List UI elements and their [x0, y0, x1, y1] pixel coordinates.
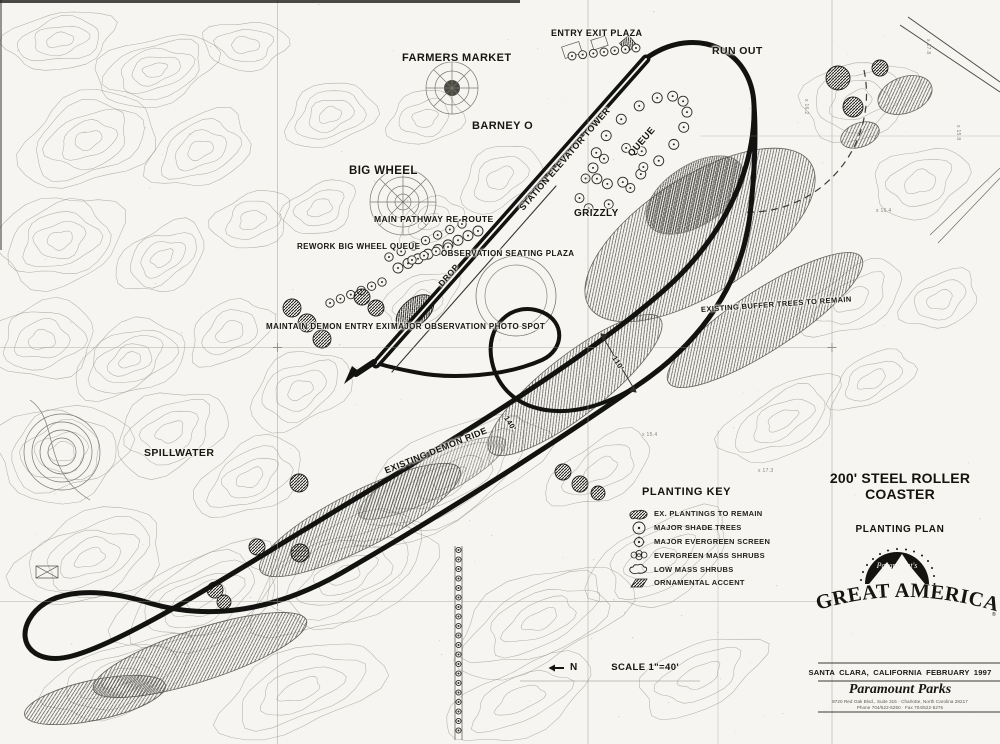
planting-masses	[20, 69, 937, 735]
north-label: N	[570, 662, 577, 673]
evergreen-mass-symbol-icon	[624, 548, 654, 562]
legend-item-label: MAJOR EVERGREEN SCREEN	[654, 537, 770, 546]
north-indicator: N	[548, 662, 577, 673]
site-plan-drawing	[0, 0, 1000, 744]
scale-text: SCALE 1"=40'	[611, 662, 679, 673]
label-farmers-market: FARMERS MARKET	[402, 52, 512, 64]
plan-sheet: ENTRY EXIT PLAZA RUN OUT FARMERS MARKET …	[0, 0, 1000, 744]
legend-item: EX. PLANTINGS TO REMAIN	[624, 507, 814, 521]
label-major-observation-photo-spot: MAJOR OBSERVATION PHOTO SPOT	[391, 322, 545, 331]
label-grizzly: GRIZZLY	[574, 208, 619, 219]
legend-item-label: LOW MASS SHRUBS	[654, 565, 734, 574]
north-arrow-icon	[548, 663, 566, 673]
legend-item: MAJOR SHADE TREES	[624, 521, 814, 535]
logo-registered-mark: ®	[992, 611, 996, 618]
legend-item-label: ORNAMENTAL ACCENT	[654, 578, 745, 587]
title-block: 200' STEEL ROLLER COASTER PLANTING PLAN	[800, 470, 1000, 535]
legend-item: EVERGREEN MASS SHRUBS	[624, 548, 814, 562]
label-big-wheel: BIG WHEEL	[349, 165, 418, 177]
spot-elevation: x 17.8	[925, 39, 931, 54]
location-date: SANTA CLARA, CALIFORNIA FEBRUARY 1997	[805, 668, 995, 677]
legend-item: LOW MASS SHRUBS	[624, 562, 814, 576]
ex-plantings-symbol-icon	[624, 507, 654, 521]
label-observation-seating-plaza: OBSERVATION SEATING PLAZA	[441, 249, 574, 258]
company-phone: Phone 704/522-5250 · Fax 704/522-5276	[805, 705, 995, 710]
paramount-dome-icon: Paramount's	[860, 548, 936, 585]
legend-item-label: MAJOR SHADE TREES	[654, 523, 742, 532]
label-barney-o: BARNEY O	[472, 120, 533, 132]
project-title: 200' STEEL ROLLER COASTER	[800, 470, 1000, 502]
legend-item-label: EVERGREEN MASS SHRUBS	[654, 551, 765, 560]
legend-item-label: EX. PLANTINGS TO REMAIN	[654, 509, 762, 518]
spot-elevation: x 17.3	[758, 468, 773, 474]
label-run-out: RUN OUT	[712, 45, 763, 57]
legend-item: MAJOR EVERGREEN SCREEN	[624, 535, 814, 549]
spot-elevation: x 16.2	[803, 99, 809, 114]
logo-great-america-text: GREAT AMERICA	[813, 580, 998, 616]
logo-paramounts-script: Paramount's	[876, 561, 918, 570]
label-maintain-demon-entry-exit: MAINTAIN DEMON ENTRY EXIT	[266, 322, 395, 331]
paramount-great-america-logo: Paramount's GREAT AMERICA ®	[812, 534, 998, 622]
planting-key-legend: PLANTING KEY EX. PLANTINGS TO REMAIN MAJ…	[624, 486, 814, 590]
ornamental-accent-symbol-icon	[624, 576, 654, 590]
shade-tree-symbol-icon	[624, 521, 654, 535]
label-entry-exit-plaza: ENTRY EXIT PLAZA	[551, 28, 642, 38]
spot-elevation: x 15.4	[642, 432, 657, 438]
legend-item: ORNAMENTAL ACCENT	[624, 576, 814, 590]
spot-elevation: x 16.4	[876, 208, 891, 214]
evergreen-screen-symbol-icon	[624, 535, 654, 549]
company-signature: Paramount Parks	[805, 682, 995, 698]
label-main-pathway-reroute: MAIN PATHWAY RE-ROUTE	[374, 214, 494, 224]
company-address: 8720 Red Oak Blvd., Suite 315 · Charlott…	[805, 699, 995, 704]
label-spillwater: SPILLWATER	[144, 447, 214, 459]
svg-text:GREAT AMERICA: GREAT AMERICA	[813, 580, 998, 616]
legend-title: PLANTING KEY	[642, 486, 814, 498]
spot-elevation: x 15.8	[955, 125, 961, 140]
label-rework-big-wheel-queue: REWORK BIG WHEEL QUEUE	[297, 242, 420, 251]
low-mass-symbol-icon	[624, 562, 654, 576]
scale-bar: N SCALE 1"=40'	[548, 662, 679, 673]
